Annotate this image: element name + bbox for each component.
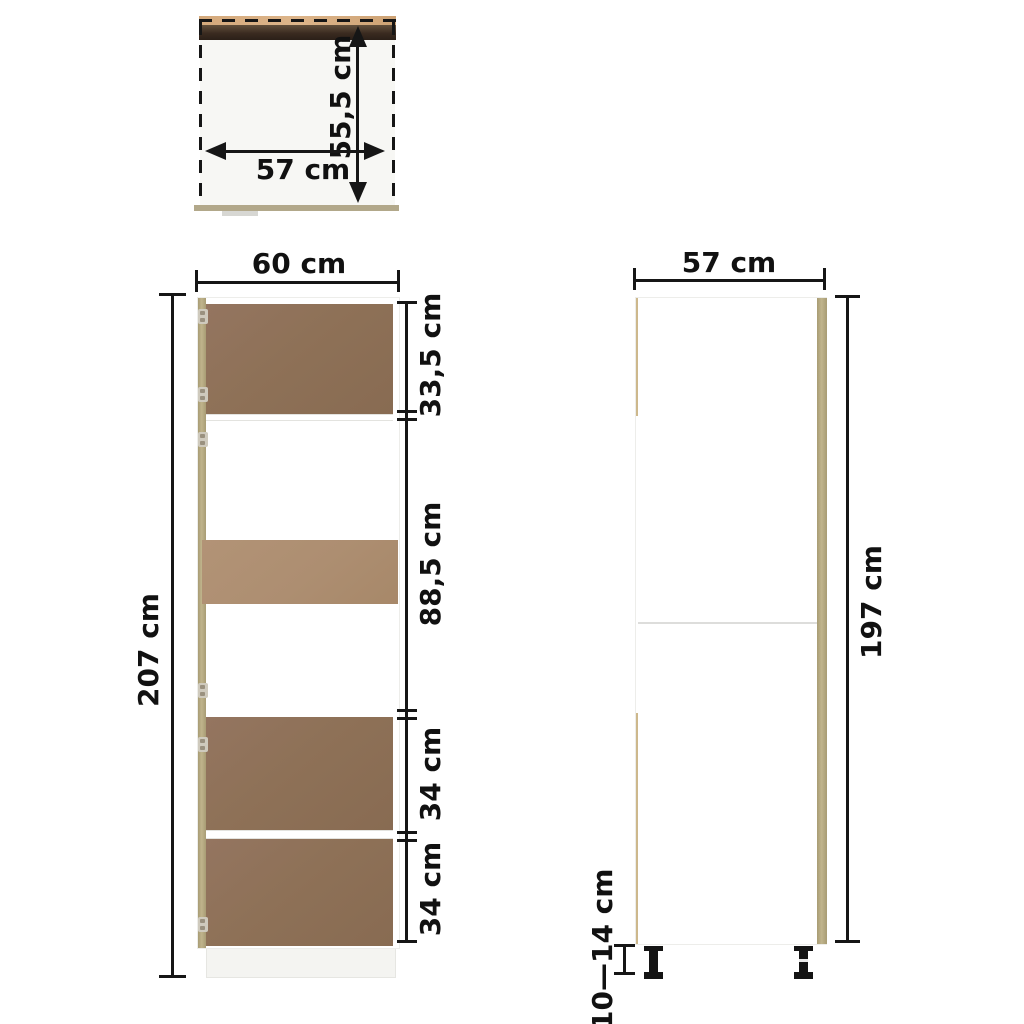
front-height-tick-top [159,293,186,296]
leg-glint [799,959,808,962]
top-width-label: 57 cm [243,154,363,186]
section-label-1: 33,5 cm [415,275,447,435]
front-width-line [197,281,400,284]
leg-foot [644,972,663,979]
side-width-line [635,279,826,282]
hinge [198,309,208,324]
shelf-edge-2 [206,830,393,839]
section-label-4: 34 cm [415,809,447,969]
side-height-label: 197 cm [856,522,888,682]
hidden-edge-dashed-left [199,22,202,207]
front-height-label: 207 cm [133,570,165,730]
legs-height-label: 10—14 cm [587,870,619,1024]
hidden-edge-dashed-right [392,22,395,207]
front-cabinet-body [197,297,400,949]
side-width-tick-right [823,268,826,290]
legs-height-line [623,946,626,974]
side-width-tick-left [633,268,636,290]
side-divider-line [638,622,817,624]
arrow-left [205,142,226,160]
hinge [198,432,208,447]
hinge [198,737,208,752]
top-view-rail-tab [222,211,258,216]
front-height-tick-bottom [159,975,186,978]
front-width-tick-left [195,270,198,292]
arrow-right [364,142,385,160]
hinge [198,387,208,402]
plinth [206,949,396,978]
back-panel-edge [817,298,827,944]
side-cabinet-body [635,297,827,945]
hinge [198,917,208,932]
front-door-edge-lower [636,713,638,944]
front-door-edge-upper [636,298,638,416]
sections-line [405,302,408,943]
section-tick [397,940,417,943]
shelf-edge-1 [206,414,393,421]
door-panel-bottom [206,839,393,946]
door-panel-top [206,304,393,414]
leg-stem [649,951,658,972]
hinge [198,683,208,698]
side-height-line [846,297,849,942]
side-height-tick-bottom [835,940,860,943]
section-tick [397,831,417,834]
section-tick [397,418,417,421]
front-width-label: 60 cm [239,248,359,280]
front-width-tick-right [397,270,400,292]
door-panel-middle [206,717,393,830]
front-height-line [171,295,174,978]
side-height-tick-top [835,295,860,298]
section-tick [397,717,417,720]
hidden-edge-dashed-top [199,19,396,22]
product-dimension-diagram: 55,5 cm 57 cm 60 cm 207 cm [0,0,1024,1024]
section-label-2: 88,5 cm [415,484,447,644]
adjustable-leg-right [794,946,813,979]
adjustable-leg-left [644,946,663,979]
section-tick [397,709,417,712]
niche-panel [202,540,398,604]
leg-foot [794,972,813,979]
side-width-label: 57 cm [669,247,789,279]
